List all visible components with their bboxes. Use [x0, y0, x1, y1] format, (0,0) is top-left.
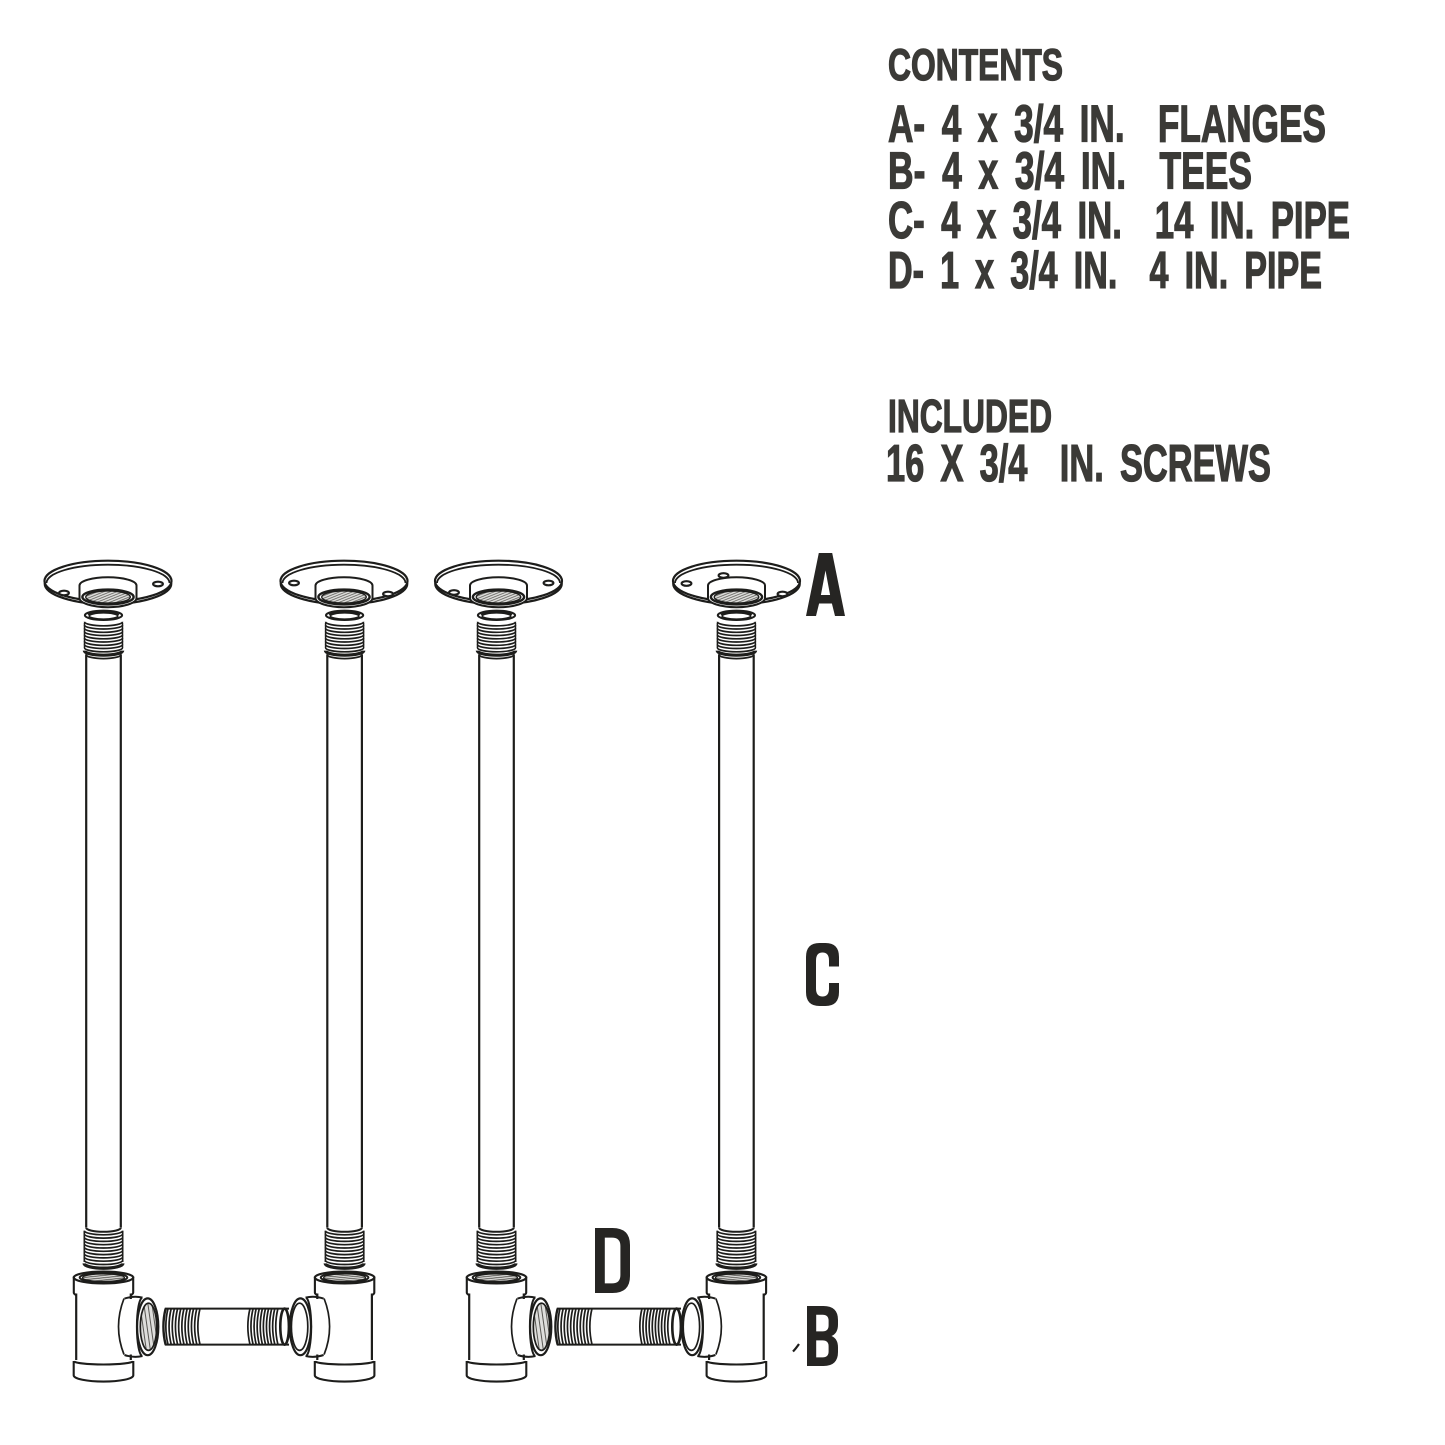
svg-text:16 X 3/4 IN. SCREWS: 16 X 3/4 IN. SCREWS: [886, 435, 1271, 493]
svg-text:CONTENTS: CONTENTS: [888, 41, 1063, 90]
svg-text:D- 1 x 3/4 IN. 4 IN. PIPE: D- 1 x 3/4 IN. 4 IN. PIPE: [888, 241, 1322, 299]
